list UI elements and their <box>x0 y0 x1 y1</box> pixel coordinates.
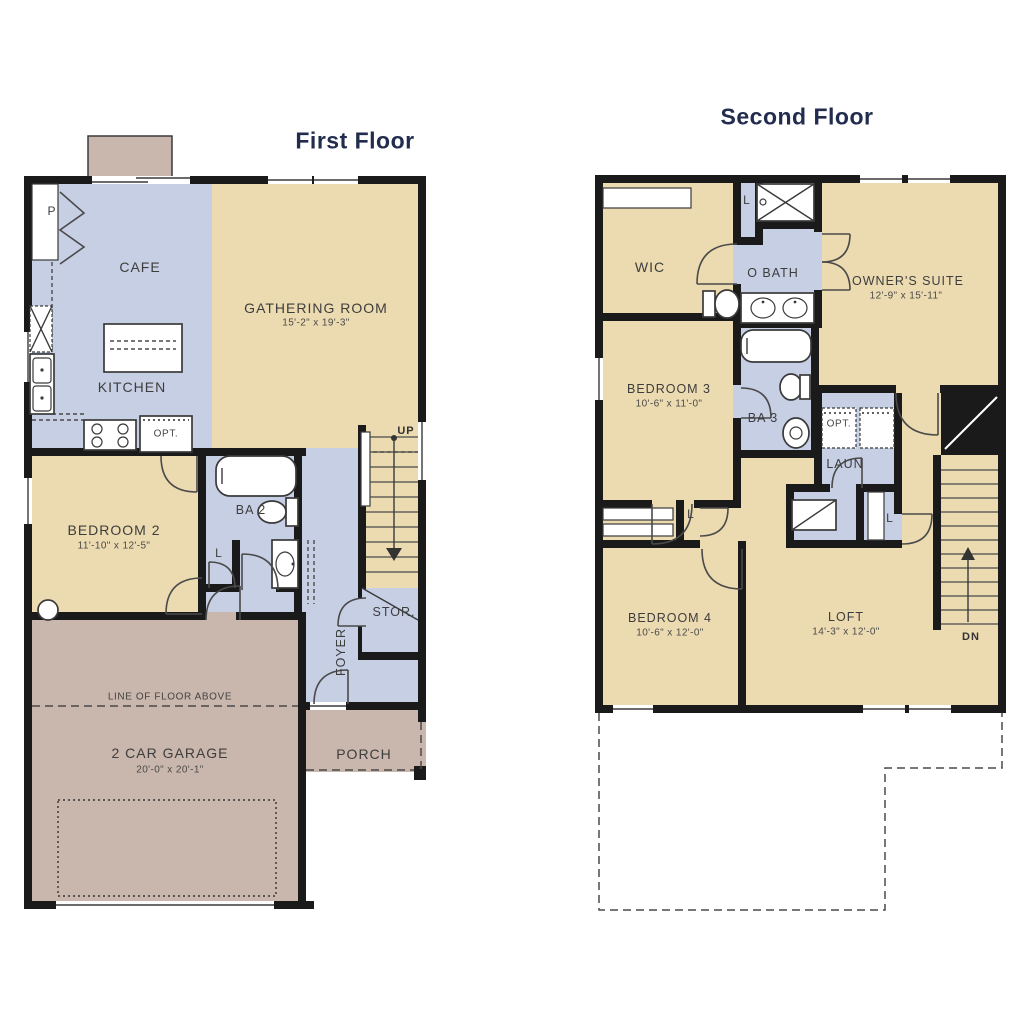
gathering-room-dims: 15'-2" x 19'-3" <box>282 318 350 329</box>
wic-shelf <box>603 188 691 208</box>
second-floor-title: Second Floor <box>721 104 874 131</box>
stove <box>84 420 136 450</box>
bath3-label: BA 3 <box>748 411 778 425</box>
linen-loft-label: L <box>886 511 894 525</box>
hall-closet-shelf-1 <box>603 508 673 520</box>
toilet-tank-obath <box>703 291 715 317</box>
kitchen-label: KITCHEN <box>98 379 166 395</box>
bedroom3-label: BEDROOM 3 <box>627 382 711 396</box>
loft-closet-back <box>868 492 884 540</box>
loft-dims: 14'-3" x 12'-0" <box>812 627 880 638</box>
storage-label: STOR. <box>373 605 416 619</box>
toilet-tank-ba3 <box>800 375 810 399</box>
porch-area <box>306 710 426 772</box>
bedroom4-dims: 10'-6" x 12'-0" <box>636 628 704 639</box>
pantry-interior <box>32 184 58 260</box>
linen-hall-label: L <box>687 507 695 521</box>
toilet-tank-1f <box>286 498 298 526</box>
bath2-label: BA 2 <box>236 503 266 517</box>
cafe-label: CAFE <box>119 259 160 275</box>
pantry-label: P <box>47 204 56 218</box>
garage-label: 2 CAR GARAGE <box>111 745 228 761</box>
floor-plan-page: First Floor P CAFE KITCHEN GATHERING ROO… <box>0 0 1024 1024</box>
first-floor-bumpout <box>88 136 172 180</box>
up-label: UP <box>397 425 414 437</box>
stairs-area-1f <box>362 448 422 588</box>
owners-bath-label: O BATH <box>747 266 799 280</box>
linen-label-1f: L <box>215 546 223 560</box>
bedroom3-dims: 10'-6" x 11'-0" <box>636 399 703 410</box>
tub-1f <box>216 456 296 496</box>
opt-label-1f: OPT. <box>154 429 179 440</box>
line-of-floor-above-label: LINE OF FLOOR ABOVE <box>108 692 232 703</box>
toilet-obath <box>715 290 739 318</box>
garage-column <box>38 600 58 620</box>
first-floor-title: First Floor <box>295 128 414 155</box>
owners-suite-label: OWNER'S SUITE <box>852 274 964 288</box>
bedroom4-label: BEDROOM 4 <box>628 611 712 625</box>
foyer-label: FOYER <box>334 628 348 676</box>
gathering-room-label: GATHERING ROOM <box>244 300 388 316</box>
loft-label: LOFT <box>828 610 864 624</box>
laundry-label: LAUN <box>826 457 863 471</box>
toilet-ba3 <box>780 374 802 400</box>
hall-closet-shelf-2 <box>603 524 673 536</box>
tub-ba3 <box>741 330 811 362</box>
wic-label: WIC <box>635 259 665 275</box>
bedroom2-dims: 11'-10" x 12'-5" <box>78 541 151 552</box>
owners-suite-dims: 12'-9" x 15'-11" <box>870 291 943 302</box>
dn-label: DN <box>962 631 980 643</box>
floor-plan-drawing <box>0 0 1024 1024</box>
opt-label-2f: OPT. <box>827 419 852 430</box>
linen-top-label: L <box>743 193 751 207</box>
optional-dryer <box>860 408 894 448</box>
garage-dims: 20'-0" x 20'-1" <box>136 765 204 776</box>
roof-outline-dash <box>599 713 1002 910</box>
kitchen-island <box>104 324 182 372</box>
bedroom2-label: BEDROOM 2 <box>67 522 160 538</box>
porch-label: PORCH <box>336 746 392 762</box>
